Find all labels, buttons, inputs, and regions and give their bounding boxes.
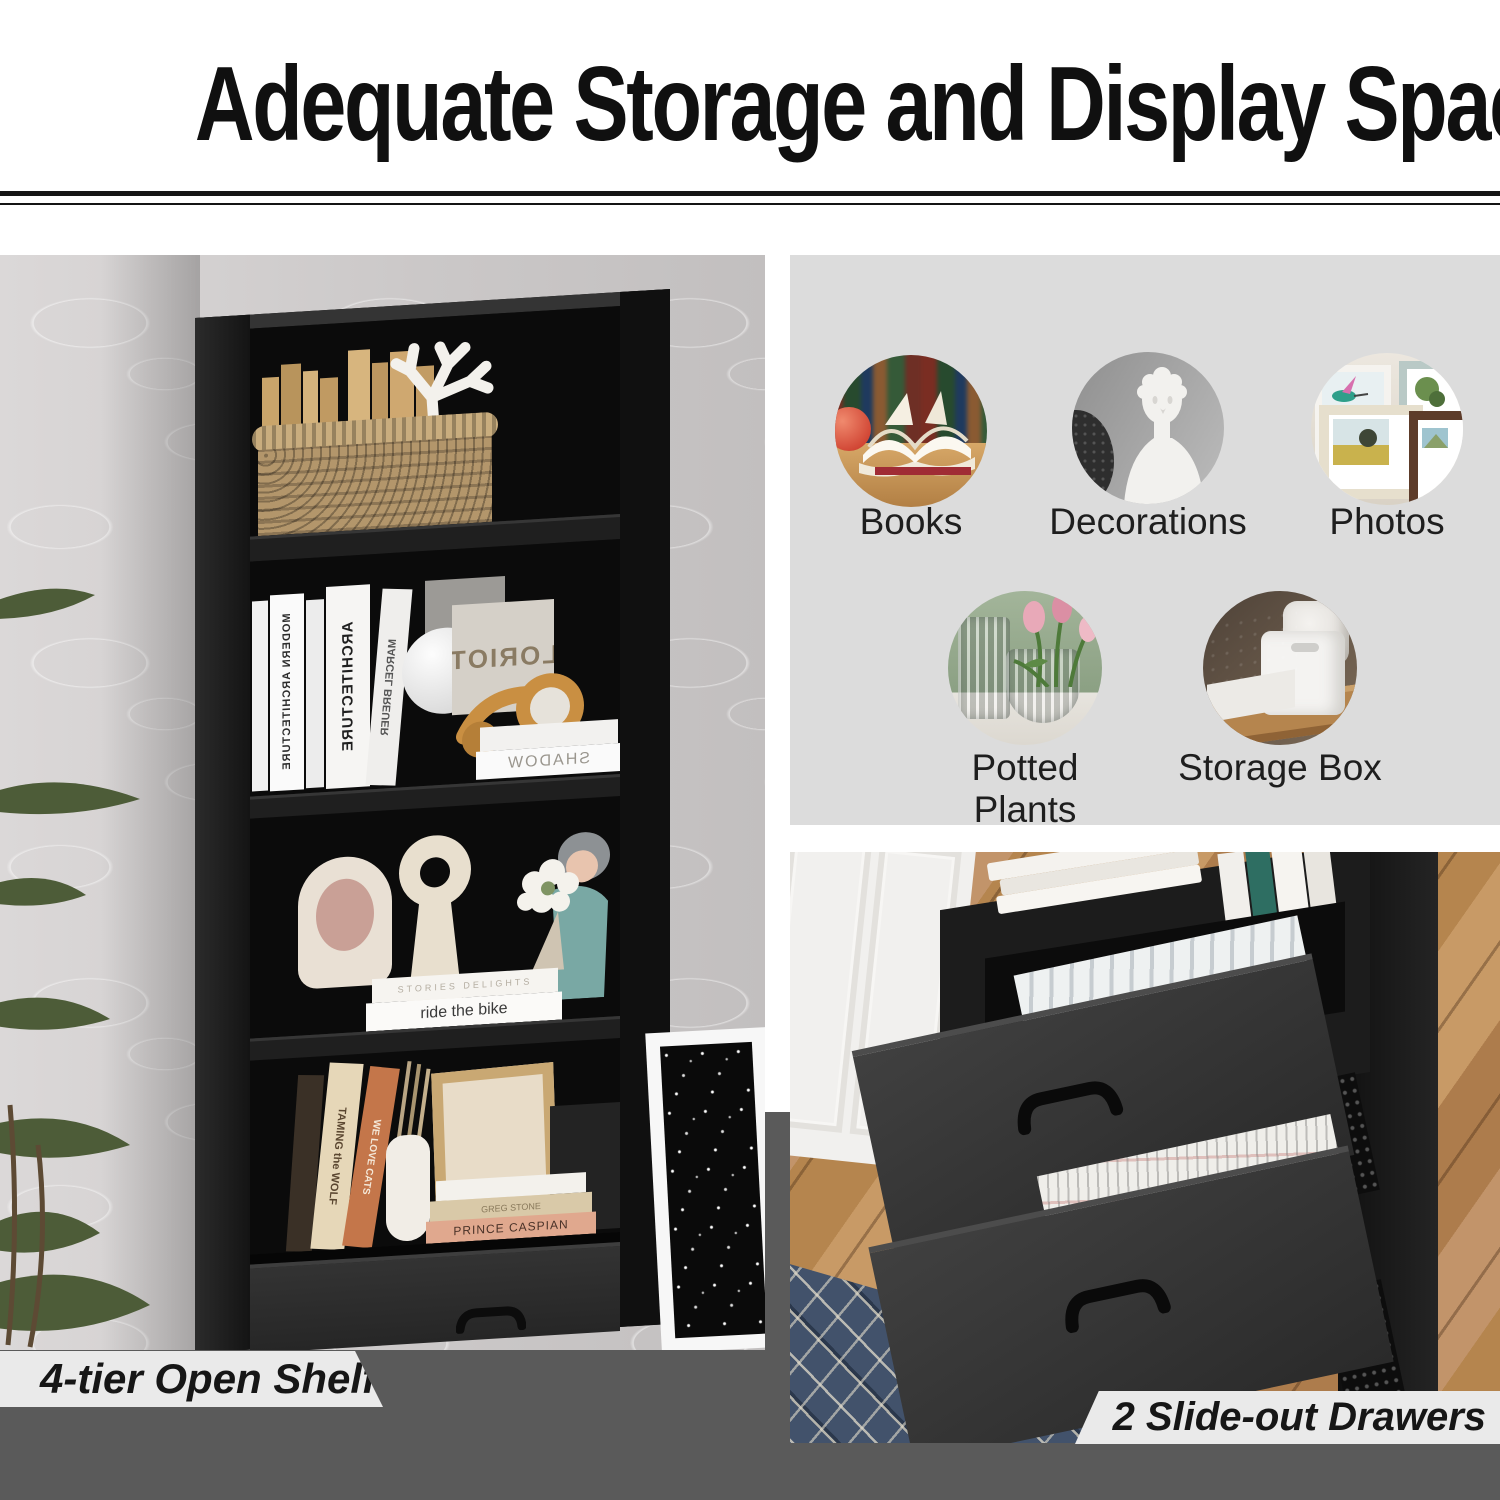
shelf-tier-1 [250, 306, 620, 537]
open-book [855, 385, 980, 480]
starry-art-print [660, 1042, 765, 1338]
books-photo-circle [835, 355, 987, 507]
divider-line-thick [0, 191, 1500, 196]
shelf-tier-2: MODERN ARCHITECTURE ARCHITECTURE MARCEL … [250, 539, 620, 797]
book-spine-architecture: ARCHITECTURE [326, 584, 370, 789]
usage-category-panel: Books Decorations [790, 255, 1500, 825]
category-label-decorations: Decorations [1038, 501, 1258, 543]
right-photo-caption: 2 Slide-out Drawers [1113, 1395, 1486, 1440]
category-label-books: Books [801, 501, 1021, 543]
upper-drawer-handle [1009, 1072, 1125, 1136]
caption-banner-left: 4-tier Open Shelf [0, 1351, 383, 1407]
woven-basket [258, 436, 492, 536]
book-spine-modern-architecture: MODERN ARCHITECTURE [270, 593, 304, 791]
book-spine [306, 599, 324, 788]
book-spine [252, 601, 268, 792]
left-photo-caption: 4-tier Open Shelf [40, 1355, 376, 1403]
pink-tulips [1004, 595, 1100, 687]
category-label-storage-box: Storage Box [1170, 747, 1390, 789]
bookshelf-photo: MODERN ARCHITECTURE ARCHITECTURE MARCEL … [0, 255, 765, 1350]
black-bookshelf: MODERN ARCHITECTURE ARCHITECTURE MARCEL … [195, 289, 670, 1350]
caption-banner-right: 2 Slide-out Drawers [1075, 1391, 1500, 1444]
plaster-bust [1110, 360, 1220, 504]
potted-plant-leaves [0, 585, 200, 1350]
ribbed-glass-vase-tall [958, 617, 1010, 719]
shelf-tier-4: TAMING the WOLF WE LOVE CATS GREG STONE … [250, 1038, 620, 1255]
drawer-handle [456, 1304, 526, 1334]
white-vase [386, 1134, 430, 1243]
product-infographic: Adequate Storage and Display Space [0, 0, 1500, 1500]
header: Adequate Storage and Display Space [0, 44, 1500, 194]
walnut-frame [1409, 411, 1463, 505]
leaning-framed-art [645, 1027, 765, 1350]
photos-photo-circle [1311, 353, 1463, 505]
divider-line-thin [0, 203, 1500, 205]
lower-drawer-handle [1057, 1270, 1173, 1334]
shelf-tier-3: STORIES DELIGHTS ride the bike [250, 796, 620, 1039]
field [1333, 445, 1389, 465]
decorations-photo-circle [1072, 352, 1224, 504]
tree [1359, 429, 1377, 447]
category-label-photos: Photos [1277, 501, 1497, 543]
page-title: Adequate Storage and Display Space [195, 44, 1500, 165]
drawers-photo: Texas Coast Beaches [790, 852, 1500, 1443]
category-label-potted-plants: Potted Plants [915, 747, 1135, 831]
storage-box-photo-circle [1203, 591, 1357, 745]
cream-frame-landscape [1319, 405, 1423, 499]
bookshelf-left-side [195, 315, 250, 1350]
potted-plants-photo-circle [948, 591, 1102, 745]
